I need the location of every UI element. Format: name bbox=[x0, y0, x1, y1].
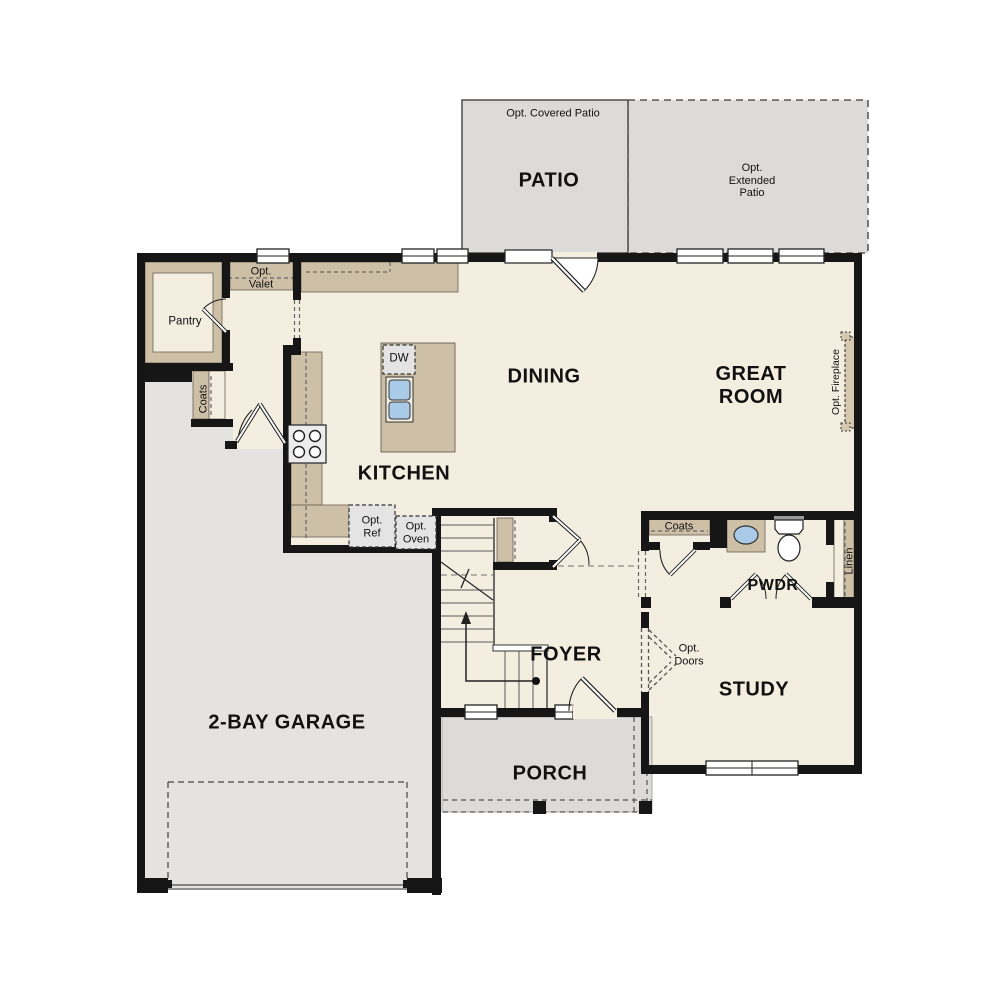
covered-patio-area bbox=[462, 100, 628, 253]
dishwasher bbox=[383, 345, 415, 374]
optional-oven bbox=[396, 516, 436, 549]
island-sink bbox=[386, 377, 413, 422]
floor-plan-drawing bbox=[0, 0, 1000, 1000]
porch-post bbox=[639, 801, 652, 814]
extended-patio-area bbox=[628, 100, 868, 253]
porch-area bbox=[442, 717, 652, 812]
floor-plan: Opt. Covered Patio PATIO Opt. Extended P… bbox=[0, 0, 1000, 1000]
range-stove bbox=[288, 425, 326, 463]
porch-post bbox=[533, 801, 546, 814]
optional-refrigerator bbox=[349, 505, 395, 547]
powder-sink bbox=[734, 526, 758, 544]
